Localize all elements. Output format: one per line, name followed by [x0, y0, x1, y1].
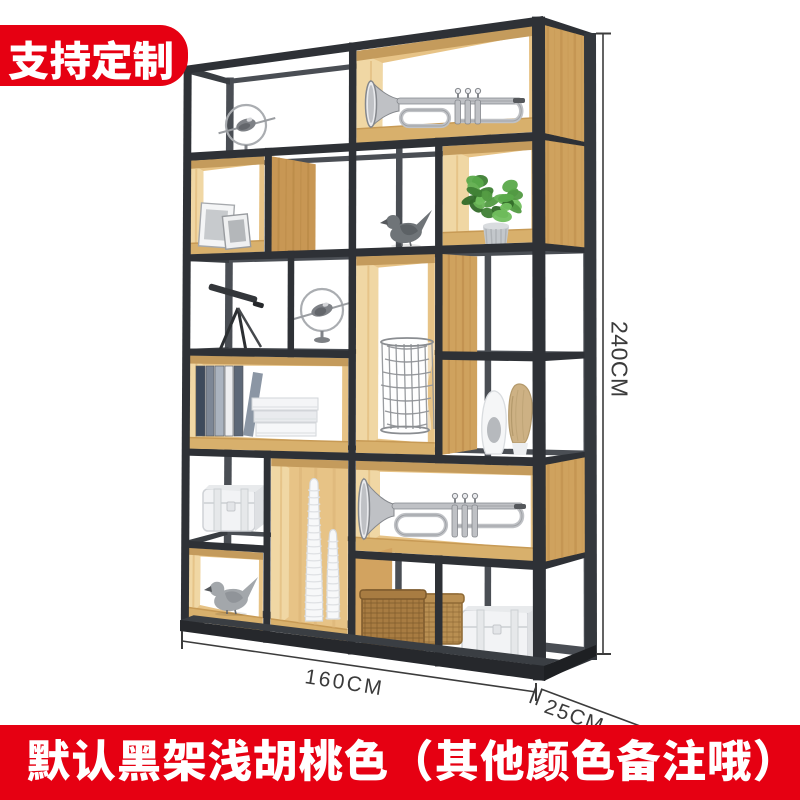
svg-text:240CM: 240CM — [607, 321, 633, 398]
